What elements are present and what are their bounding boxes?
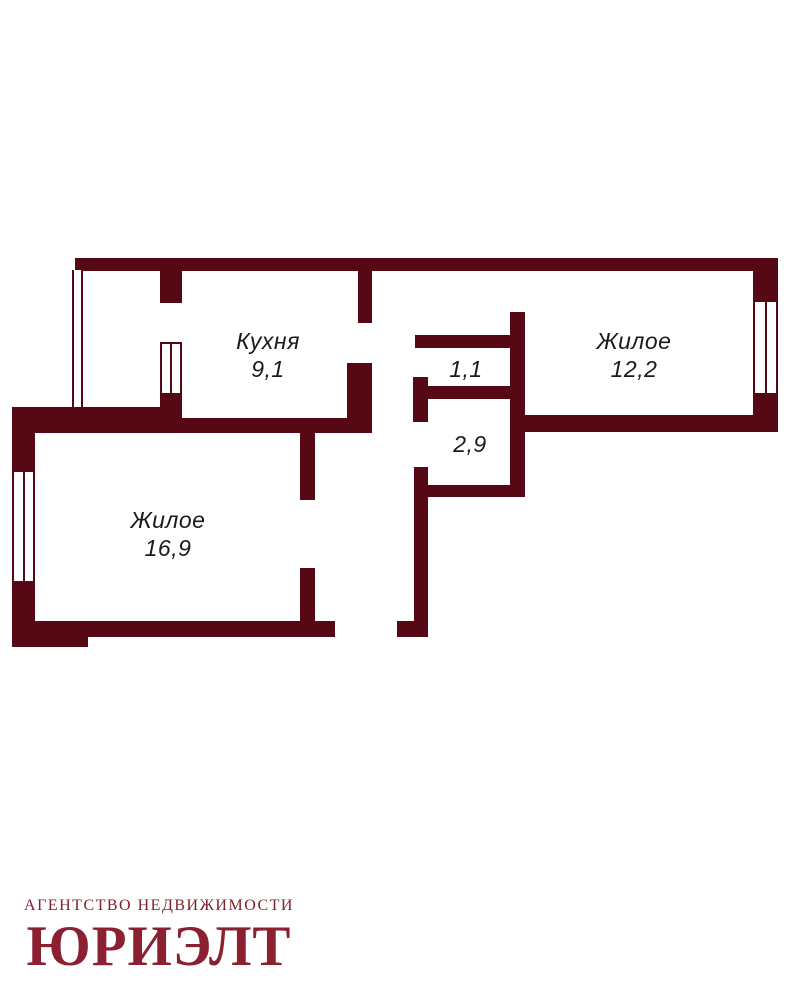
wall-hallway-top (415, 335, 510, 348)
wall-living1-bottom (510, 415, 778, 432)
wall-right-upper (753, 271, 778, 300)
wall-kitchen-right-upper (358, 271, 372, 323)
wall-corridor-vertical (414, 467, 428, 637)
wall-living1-left (510, 312, 525, 497)
wall-bottom (12, 621, 335, 637)
wall-left-upper (12, 407, 35, 470)
agency-logo-tagline: АГЕНТСТВО НЕДВИЖИМОСТИ (8, 896, 310, 916)
agency-logo: АГЕНТСТВО НЕДВИЖИМОСТИ ЮРИЭЛТ (8, 896, 310, 976)
room-area: 9,1 (188, 355, 348, 383)
room-area: 1,1 (426, 355, 506, 383)
room-label-living2: Жилое 16,9 (88, 506, 248, 562)
room-label-kitchen: Кухня 9,1 (188, 327, 348, 383)
room-label-living1: Жилое 12,2 (554, 327, 714, 383)
agency-logo-brand: ЮРИЭЛТ (8, 918, 310, 976)
window-mullion (765, 302, 767, 393)
window-mullion (170, 344, 172, 393)
wall-kitchen-bottom-right (160, 418, 372, 433)
wall-living2-right-upper (300, 433, 315, 500)
room-area: 2,9 (430, 430, 510, 458)
wall-kitchen-bottom-left (12, 407, 177, 433)
room-label-corridor: 2,9 (430, 430, 510, 458)
kitchen-window (160, 342, 182, 395)
wall-living2-right-lower (300, 568, 315, 637)
wall-balcony-stub-top (160, 271, 182, 303)
room-area: 16,9 (88, 534, 248, 562)
room-label-hallway: 1,1 (426, 355, 506, 383)
wall-top (75, 258, 778, 271)
wall-balcony-stub-bottom (160, 395, 182, 418)
balcony-glazing-line (72, 270, 83, 407)
room-name: Жилое (88, 506, 248, 534)
wall-entry-foot (397, 621, 428, 637)
wall-corridor-bottom (428, 485, 510, 497)
room-name: Жилое (554, 327, 714, 355)
window-mullion (23, 472, 25, 581)
floorplan-canvas: Кухня 9,1 Жилое 12,2 1,1 2,9 Жилое 16,9 … (0, 0, 800, 1000)
room-name: Кухня (188, 327, 348, 355)
wall-hallway-left-stub (413, 377, 428, 422)
living2-window (12, 470, 35, 583)
room-area: 12,2 (554, 355, 714, 383)
living1-window (753, 300, 778, 395)
